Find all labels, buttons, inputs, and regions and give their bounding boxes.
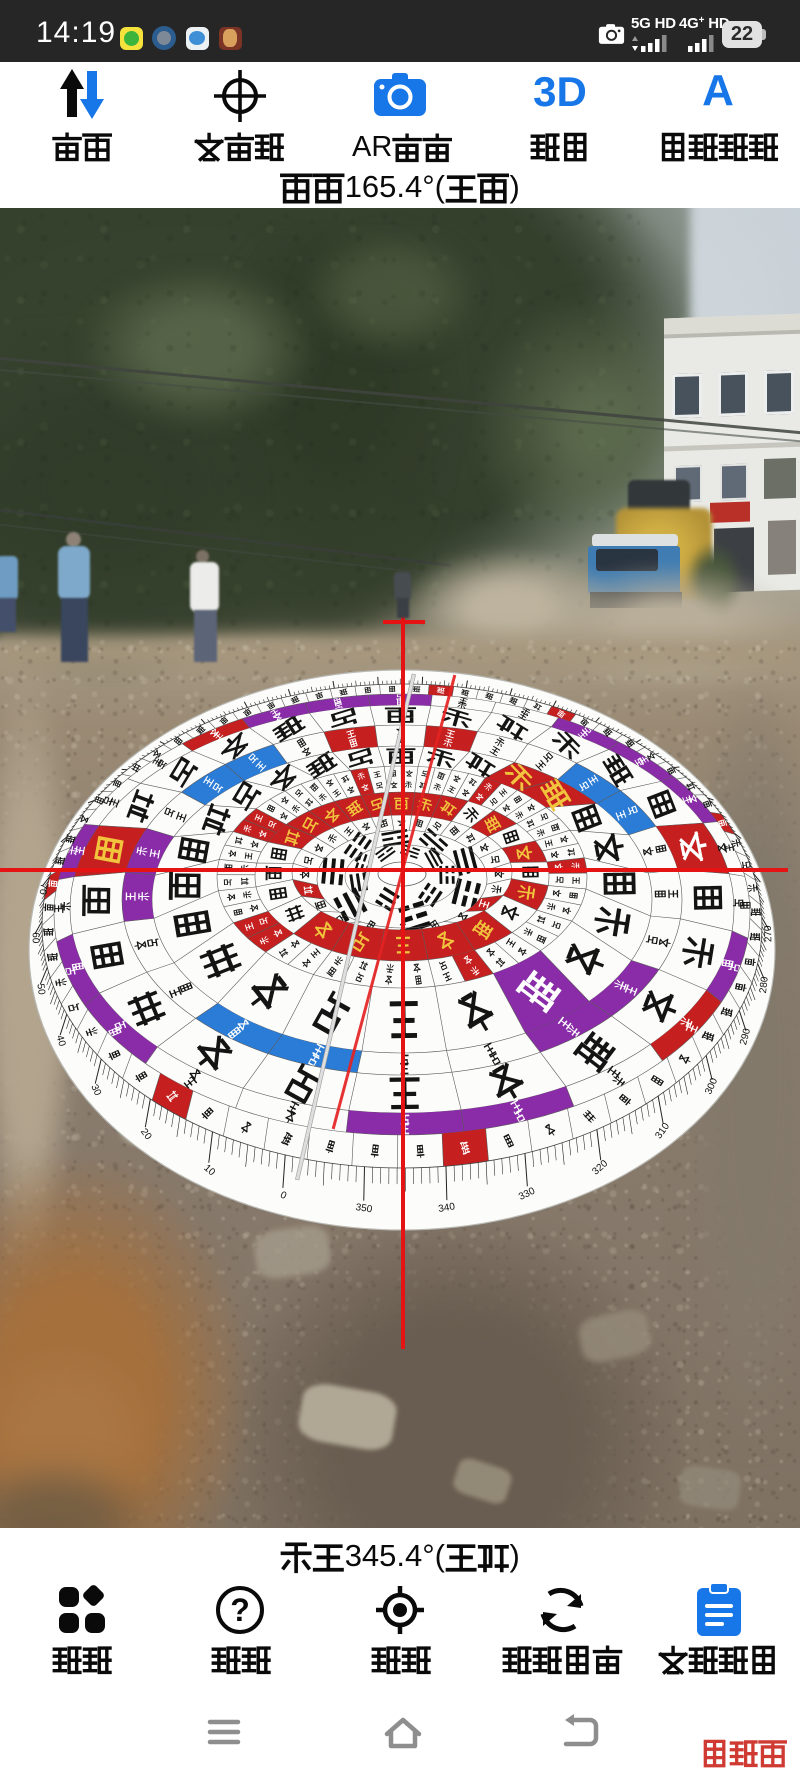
svg-text:70: 70 [36,883,49,896]
svg-text:60: 60 [30,932,41,944]
svg-text:?: ? [230,1592,250,1628]
svg-text:270: 270 [763,925,774,942]
svg-text:50: 50 [34,983,46,996]
svg-text:280: 280 [758,976,771,994]
